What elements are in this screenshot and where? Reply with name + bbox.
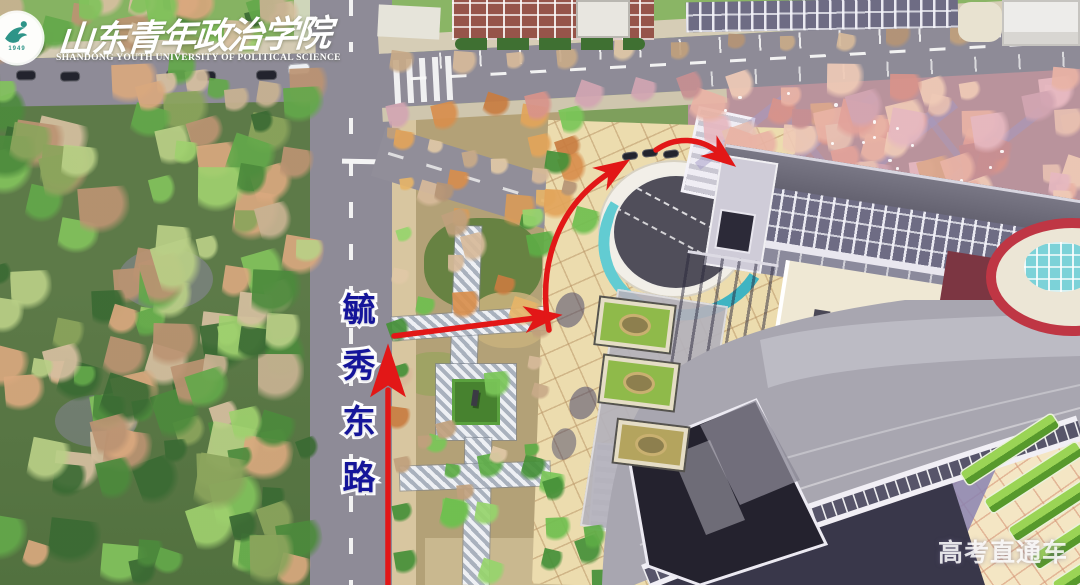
watermark-layer: 高考直通车	[0, 0, 1080, 585]
campus-aerial-map: 毓秀东路 毓秀东路 1949 山东青年政治学院 SHANDONG YOUTH U…	[0, 0, 1080, 585]
watermark-text: 高考直通车	[938, 533, 1068, 569]
